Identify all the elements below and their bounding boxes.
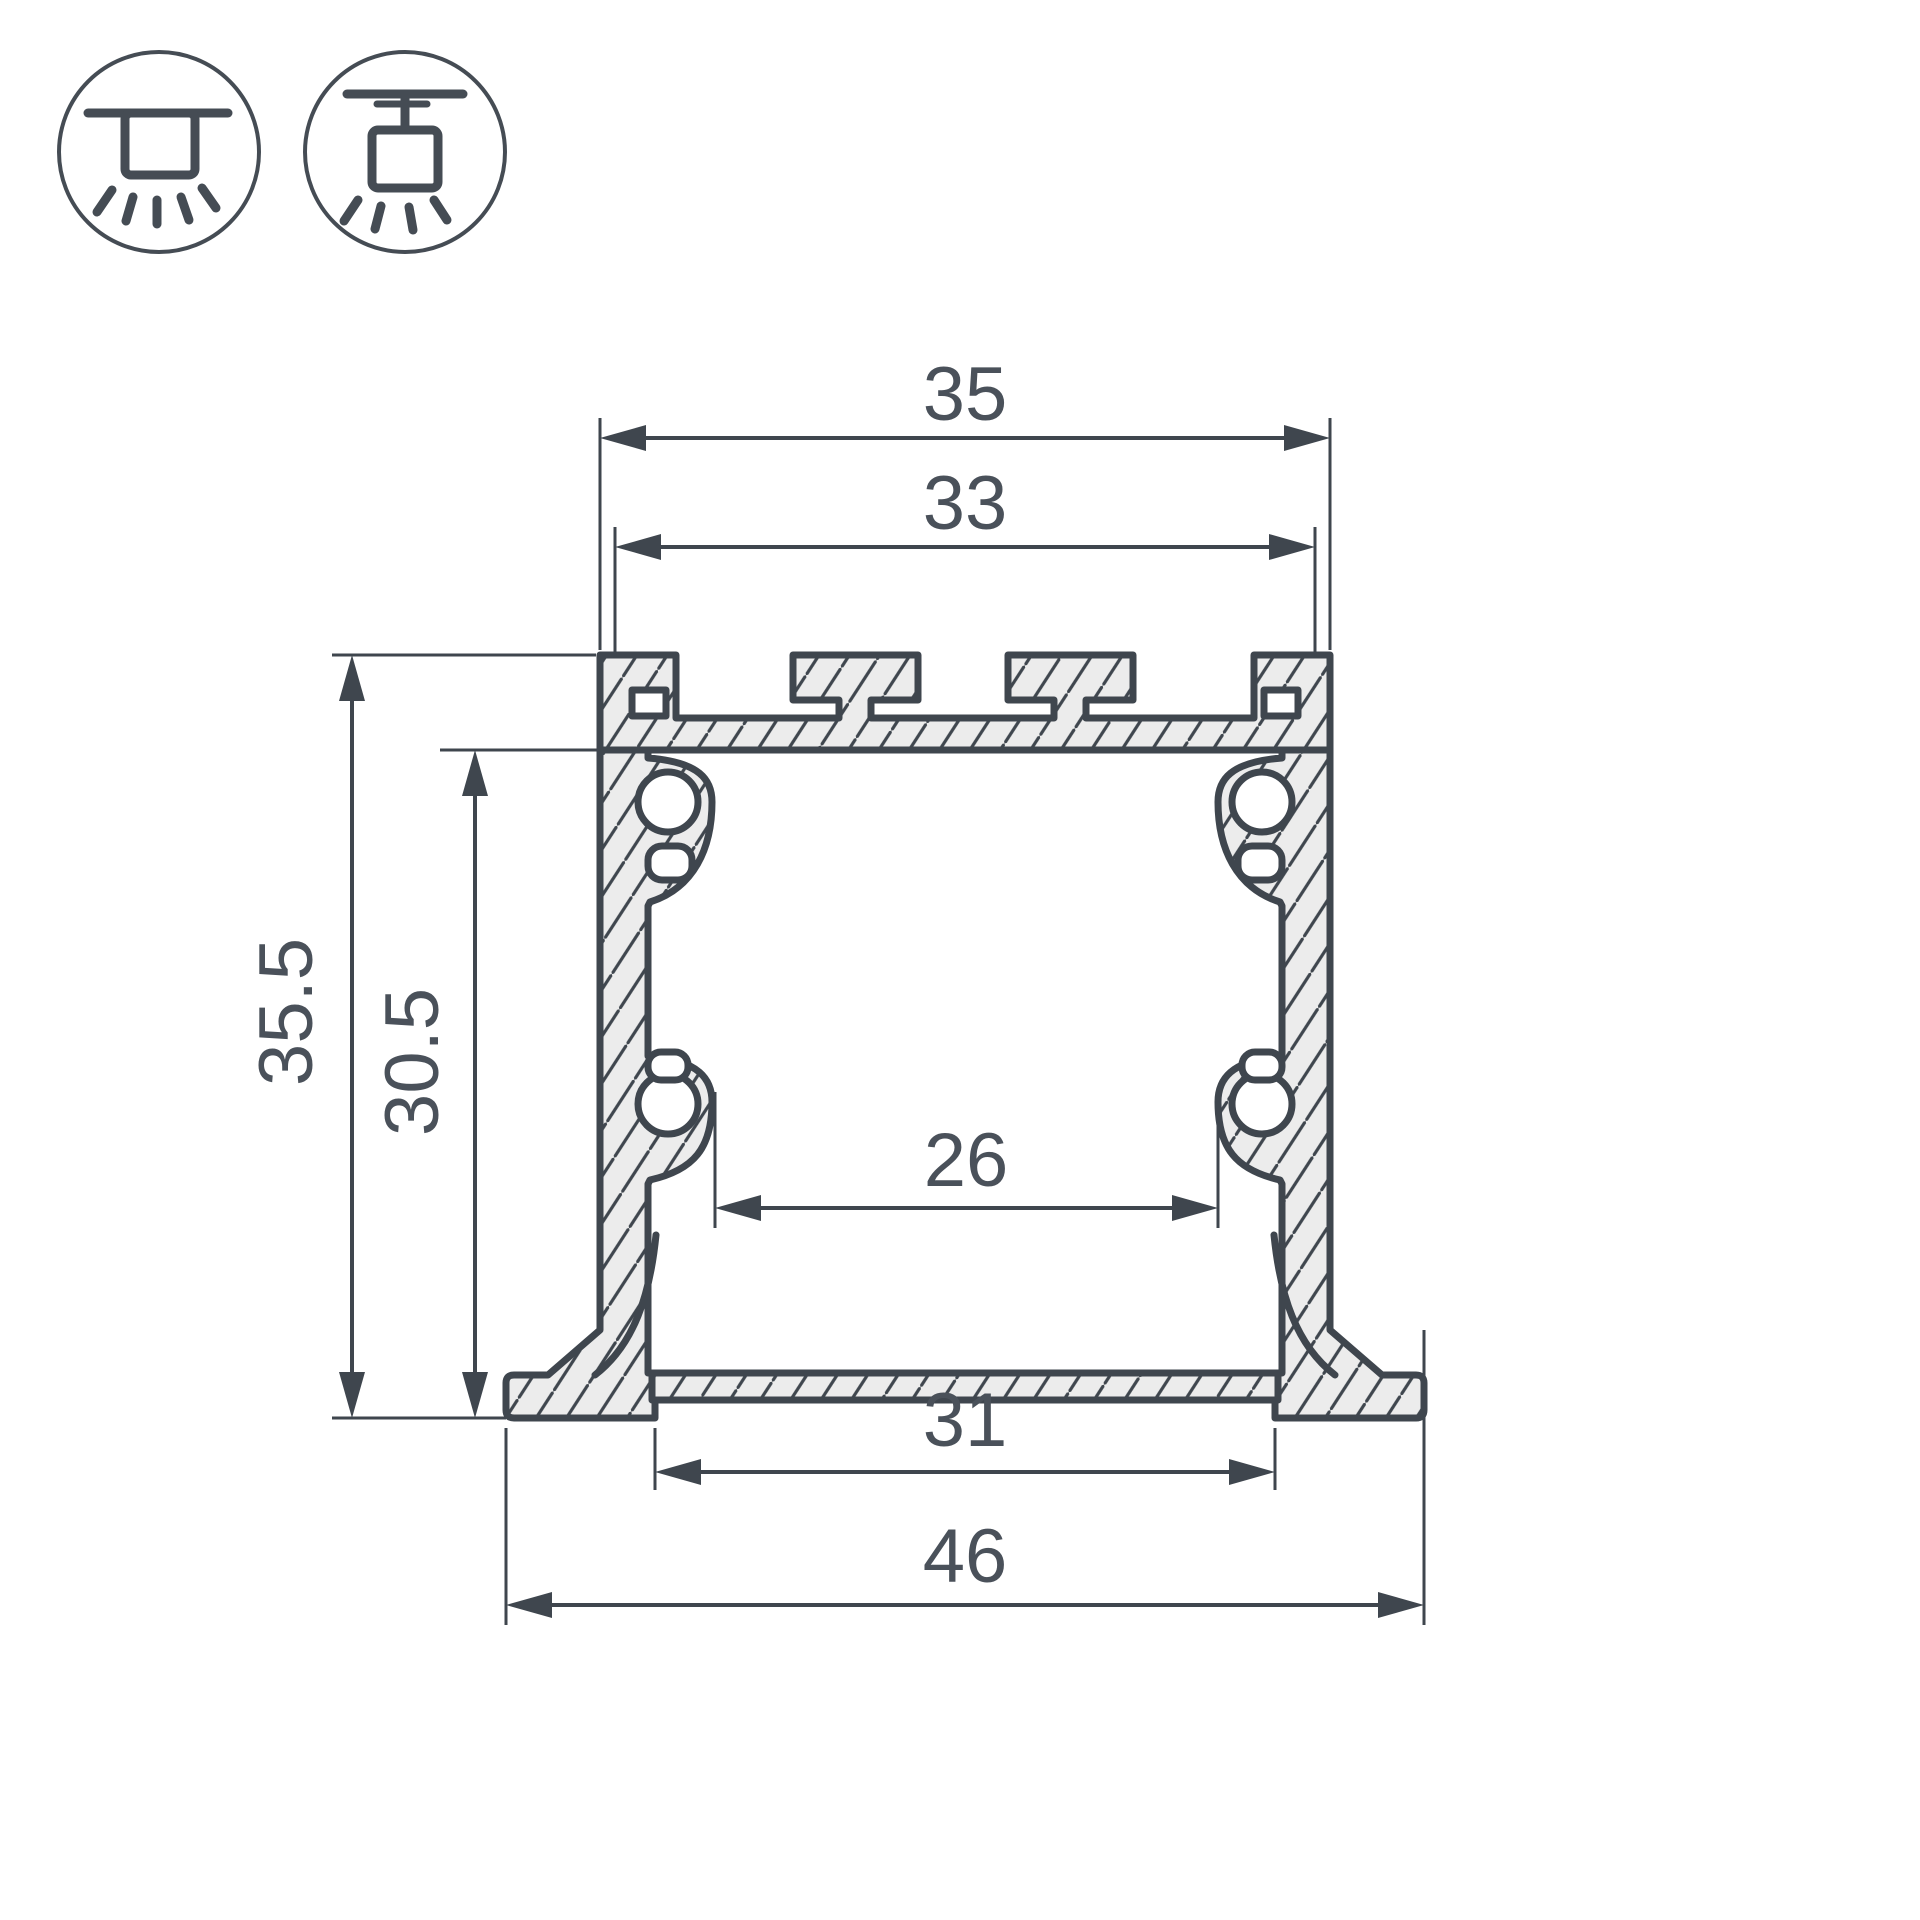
dimensions xyxy=(332,418,1424,1625)
surface-fixture-box xyxy=(372,130,438,188)
arrowhead-icon xyxy=(1269,534,1315,560)
arrowhead-icon xyxy=(339,655,365,701)
top-wall xyxy=(600,655,1330,750)
screw-boss-hole xyxy=(1232,772,1292,832)
boss-hook-notch xyxy=(648,1052,688,1080)
surface-mount-icon xyxy=(305,52,505,252)
arrowhead-icon xyxy=(1172,1195,1218,1221)
arrowhead-icon xyxy=(600,425,646,451)
arrowhead-icon xyxy=(1284,425,1330,451)
dim-label-inner-width: 26 xyxy=(924,1118,1009,1203)
drawing-page: 35 33 35.5 30.5 26 31 46 xyxy=(0,0,1920,1920)
screw-boss-hole xyxy=(638,772,698,832)
dim-label-inner-height: 30.5 xyxy=(370,988,455,1136)
arrowhead-icon xyxy=(462,1372,488,1418)
recessed-mount-icon xyxy=(59,52,259,252)
arrowhead-icon xyxy=(339,1372,365,1418)
light-rays xyxy=(344,200,447,230)
boss-hook-notch xyxy=(648,846,692,880)
arrowhead-icon xyxy=(506,1592,552,1618)
arrowhead-icon xyxy=(1378,1592,1424,1618)
profile-technical-drawing: 35 33 35.5 30.5 26 31 46 xyxy=(0,0,1920,1920)
boss-hook-notch xyxy=(1242,1052,1282,1080)
icon-circle xyxy=(305,52,505,252)
boss-hook-notch xyxy=(1238,846,1282,880)
dim-label-top-outer-width: 35 xyxy=(923,352,1008,437)
dim-label-bottom-recess-width: 31 xyxy=(923,1378,1008,1463)
arrowhead-icon xyxy=(462,750,488,796)
dim-label-outer-height: 35.5 xyxy=(244,938,329,1086)
light-rays xyxy=(97,188,216,224)
dim-label-top-inner-width: 33 xyxy=(923,461,1008,546)
arrowhead-icon xyxy=(1229,1459,1275,1485)
arrowhead-icon xyxy=(655,1459,701,1485)
dim-label-overall-width: 46 xyxy=(923,1514,1008,1599)
profile-section xyxy=(506,655,1424,1418)
arrowhead-icon xyxy=(615,534,661,560)
recessed-fixture-box xyxy=(125,113,195,175)
arrowhead-icon xyxy=(715,1195,761,1221)
